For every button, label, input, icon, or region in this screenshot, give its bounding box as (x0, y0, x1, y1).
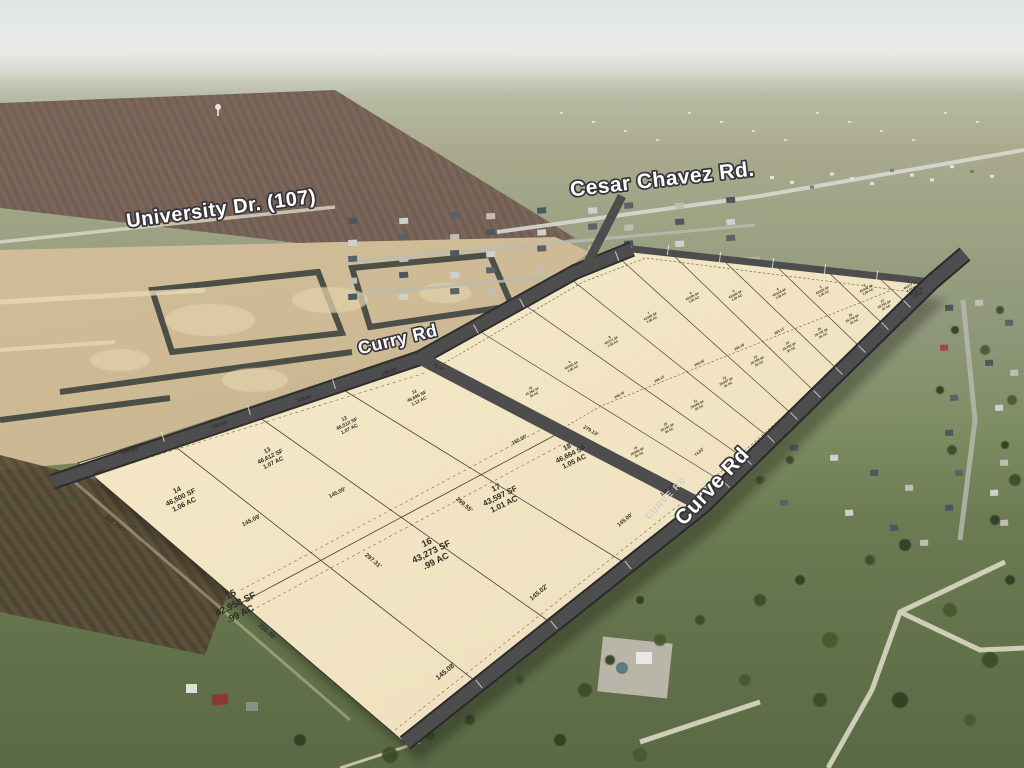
house (985, 360, 993, 366)
house (726, 235, 735, 242)
tree (739, 674, 751, 686)
house (675, 202, 684, 209)
house (399, 272, 408, 279)
distant-building (944, 112, 947, 114)
water-tower (215, 104, 221, 116)
tree (899, 539, 911, 551)
tree (990, 515, 1000, 525)
tree (636, 596, 644, 604)
distant-building (656, 139, 659, 141)
house (726, 197, 735, 204)
road-label-university: University Dr. (107) (125, 186, 317, 233)
house (890, 525, 898, 531)
distant-building (592, 121, 595, 123)
aerial-plat-screenshot: 1146,695 SF1.12 AC1246,512 SF1.07 AC1346… (0, 0, 1024, 768)
tree (936, 386, 944, 394)
house (940, 345, 948, 351)
house (348, 277, 357, 284)
tree (294, 734, 306, 746)
tree (633, 748, 647, 762)
house (830, 172, 834, 175)
house (945, 430, 953, 436)
house (486, 229, 495, 236)
house (995, 405, 1003, 411)
tree (382, 747, 398, 763)
house (450, 250, 459, 257)
tree (943, 603, 957, 617)
house (588, 223, 597, 230)
house (726, 219, 735, 226)
distant-building (848, 121, 851, 123)
house (537, 229, 546, 236)
house (348, 293, 357, 300)
tree (822, 632, 838, 648)
dirt-tracks-right (640, 562, 1024, 768)
house (930, 178, 934, 181)
tree (951, 326, 959, 334)
distant-building (560, 112, 563, 114)
house (920, 540, 928, 546)
house (1005, 320, 1013, 326)
house (486, 267, 495, 274)
tree (795, 575, 805, 585)
tree (578, 683, 592, 697)
tree (964, 714, 976, 726)
house (348, 255, 357, 262)
house (1000, 460, 1008, 466)
tree (654, 634, 666, 646)
house (486, 251, 495, 258)
house (486, 289, 495, 296)
distant-building (880, 130, 883, 132)
tree (1007, 395, 1017, 405)
house (845, 510, 853, 516)
house (675, 240, 684, 247)
distant-building (624, 130, 627, 132)
side-road-right (960, 300, 975, 540)
tree (980, 345, 990, 355)
tree (996, 306, 1004, 314)
house (950, 395, 958, 401)
tree (605, 655, 615, 665)
house (348, 239, 357, 246)
house (810, 186, 814, 189)
house (537, 267, 546, 274)
house (450, 272, 459, 279)
house (588, 207, 597, 214)
house (770, 176, 774, 179)
house (830, 455, 838, 461)
tree (66, 496, 74, 504)
tree (865, 555, 875, 565)
house (399, 294, 408, 301)
house (870, 470, 878, 476)
house (537, 245, 546, 252)
house (450, 212, 459, 219)
house (675, 218, 684, 225)
house (890, 169, 894, 172)
tree (754, 594, 766, 606)
tree (947, 445, 957, 455)
tree (813, 693, 827, 707)
distant-building (752, 130, 755, 132)
house (624, 224, 633, 231)
distant-building (688, 112, 691, 114)
tree (982, 652, 998, 668)
house (348, 217, 357, 224)
house (850, 177, 854, 180)
distant-building (720, 121, 723, 123)
tree (695, 615, 705, 625)
tree (1005, 575, 1015, 585)
house (1010, 370, 1018, 376)
house (905, 485, 913, 491)
house (870, 182, 874, 185)
house (970, 170, 974, 173)
house (975, 300, 983, 306)
house (399, 218, 408, 225)
house (450, 288, 459, 295)
house (945, 505, 953, 511)
tree (1001, 441, 1009, 449)
house (450, 234, 459, 241)
house (950, 165, 954, 168)
tree (1009, 474, 1021, 486)
distant-building (816, 112, 819, 114)
house (486, 213, 495, 220)
house (945, 305, 953, 311)
house (910, 174, 914, 177)
tree (892, 692, 908, 708)
house (537, 207, 546, 214)
house (990, 490, 998, 496)
distant-building (784, 139, 787, 141)
tree (554, 734, 566, 746)
house (790, 181, 794, 184)
house (955, 470, 963, 476)
house (399, 256, 408, 263)
distant-building (976, 121, 979, 123)
house (990, 175, 994, 178)
house (1000, 520, 1008, 526)
road-label-cesar-chavez: Cesar Chavez Rd. (569, 158, 756, 202)
dimension-label: 302.77' (103, 514, 122, 532)
distant-building (912, 139, 915, 141)
house (780, 500, 788, 506)
scene-svg: 1146,695 SF1.12 AC1246,512 SF1.07 AC1346… (0, 0, 1024, 768)
house (399, 234, 408, 241)
house (624, 202, 633, 209)
farmhouse-cluster (186, 684, 258, 711)
